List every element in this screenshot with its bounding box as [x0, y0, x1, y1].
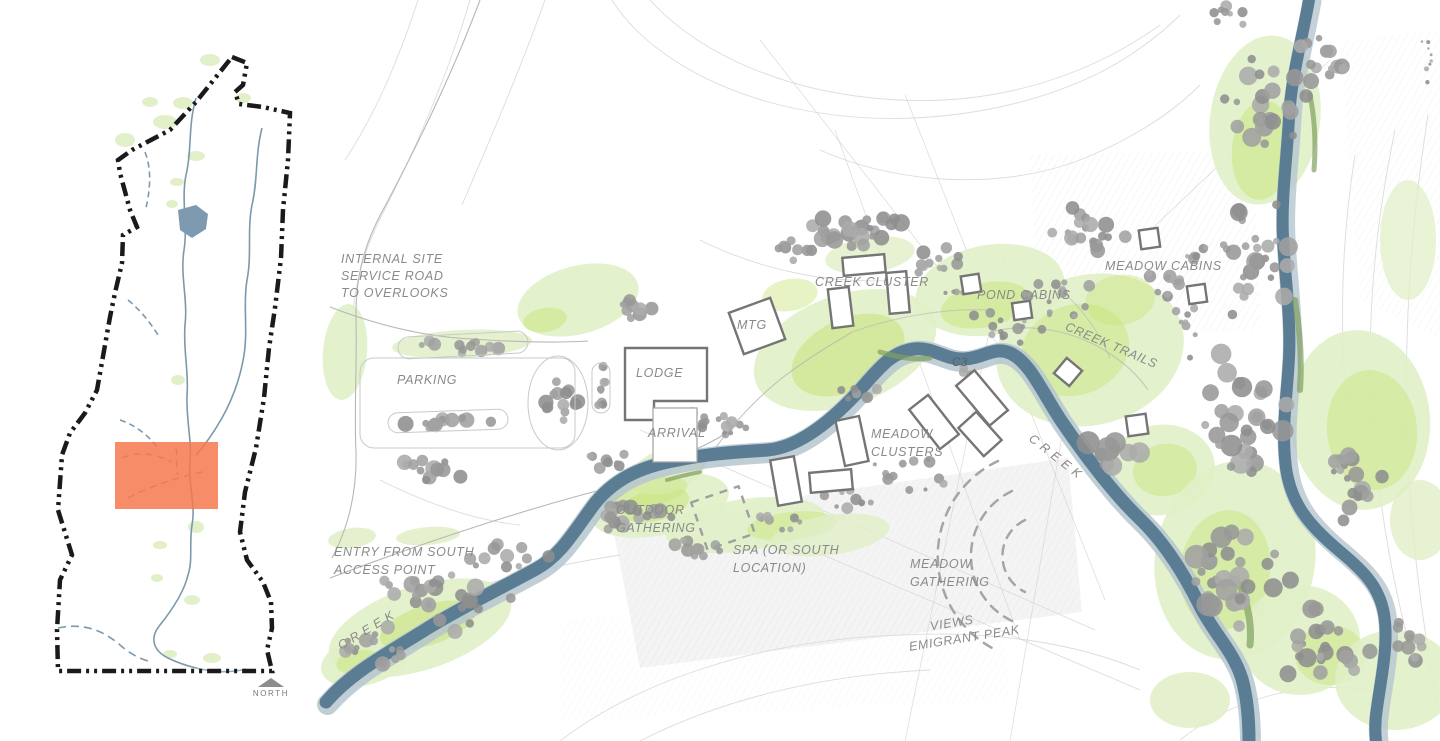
label-outdoor-gathering-2: GATHERING [616, 521, 696, 535]
label-pond-cabins: POND CABINS [977, 288, 1071, 302]
label-meadow-clusters-1: MEADOW [871, 427, 933, 441]
label-outdoor-gathering-1: OUTDOOR [616, 503, 685, 517]
locator-creeks [58, 98, 262, 672]
property-boundary [57, 57, 290, 671]
creek-cluster-building [842, 254, 885, 276]
site-plan-canvas: INTERNAL SITE SERVICE ROAD TO OVERLOOKS … [0, 0, 1440, 741]
label-spa-1: SPA (OR SOUTH [733, 543, 840, 557]
meadow-cabin [1126, 414, 1149, 437]
label-internal-road-3: TO OVERLOOKS [341, 286, 449, 300]
creek-cluster-building [828, 287, 854, 328]
master-plan-svg: INTERNAL SITE SERVICE ROAD TO OVERLOOKS … [0, 0, 1440, 741]
label-entry-south-1: ENTRY FROM SOUTH [334, 545, 475, 559]
locator-map: NORTH [57, 54, 290, 698]
label-entry-south-2: ACCESS POINT [333, 563, 436, 577]
label-meadow-gathering-1: MEADOW [910, 557, 972, 571]
locator-green-patches [115, 54, 251, 663]
north-arrow-icon [258, 678, 284, 687]
site-plan-map: INTERNAL SITE SERVICE ROAD TO OVERLOOKS … [315, 0, 1440, 741]
meadow-cabin [1139, 228, 1160, 249]
label-arrival: ARRIVAL [647, 426, 706, 440]
north-marker: NORTH [253, 678, 289, 698]
label-meadow-cabins: MEADOW CABINS [1105, 259, 1222, 273]
label-creek-cluster: CREEK CLUSTER [815, 275, 929, 289]
locator-pond [178, 205, 208, 238]
meadow-cabin [1187, 284, 1207, 304]
label-internal-road-2: SERVICE ROAD [341, 269, 444, 283]
label-mtg: MTG [737, 318, 767, 332]
label-parking: PARKING [397, 373, 457, 387]
label-lodge: LODGE [636, 366, 683, 380]
label-spa-2: LOCATION) [733, 561, 806, 575]
pond-cabin [1012, 301, 1032, 320]
label-meadow-clusters-2: CLUSTERS [871, 445, 943, 459]
site-extent-highlight[interactable] [115, 442, 218, 509]
label-c3: C3 [952, 357, 968, 369]
meadow-cluster-building [835, 416, 868, 466]
label-internal-road-1: INTERNAL SITE [341, 252, 443, 266]
meadow-cluster-building [809, 469, 853, 493]
north-label: NORTH [253, 689, 289, 698]
label-meadow-gathering-2: GATHERING [910, 575, 990, 589]
